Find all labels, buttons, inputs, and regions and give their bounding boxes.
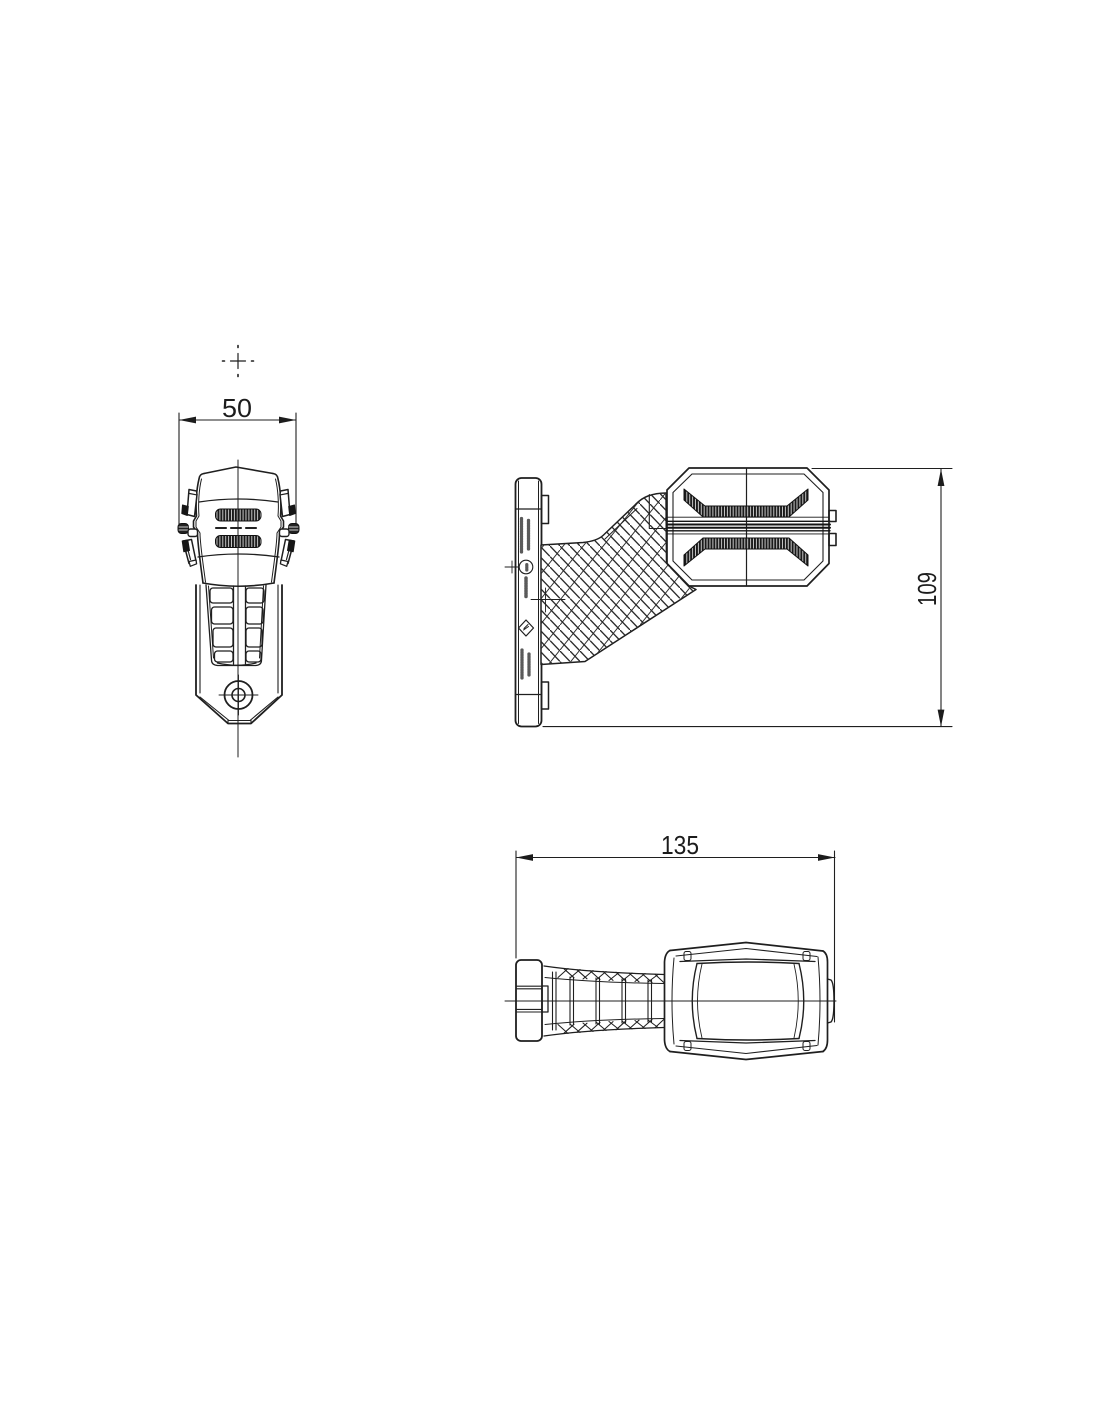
svg-text:135: 135 — [661, 830, 699, 860]
svg-text:50: 50 — [222, 393, 252, 423]
svg-text:109: 109 — [912, 572, 942, 606]
